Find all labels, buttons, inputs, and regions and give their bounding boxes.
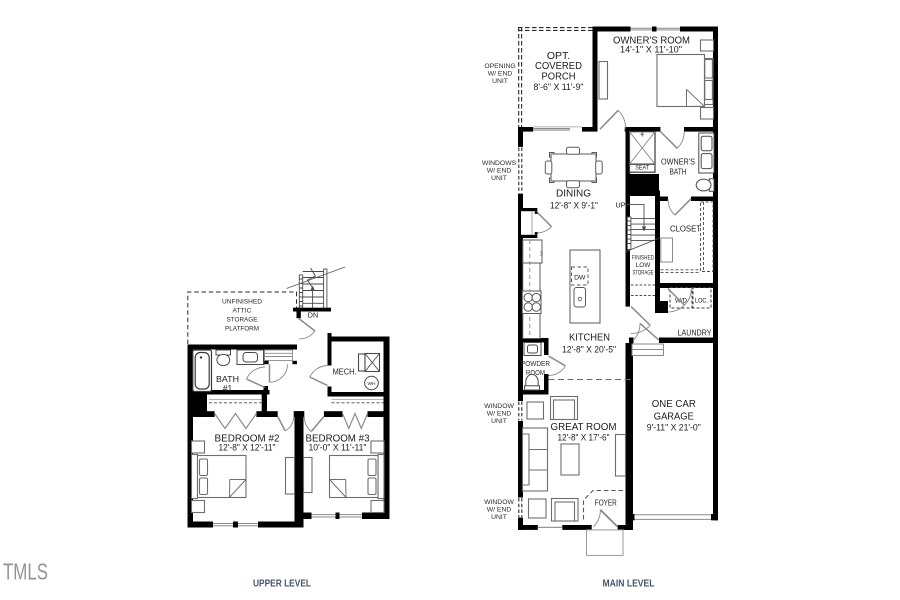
svg-text:10'-0" X 11'-11": 10'-0" X 11'-11" xyxy=(309,443,367,453)
svg-text:POWDER: POWDER xyxy=(521,359,550,368)
svg-text:UNIT: UNIT xyxy=(491,418,507,425)
svg-text:FOYER: FOYER xyxy=(595,499,617,508)
svg-text:9'-11" X 21'-0": 9'-11" X 21'-0" xyxy=(647,423,701,433)
svg-text:SEAT: SEAT xyxy=(635,165,649,172)
svg-text:ONE CAR: ONE CAR xyxy=(652,398,696,410)
svg-text:UP: UP xyxy=(616,200,626,209)
svg-text:STORAGE: STORAGE xyxy=(227,317,258,324)
svg-text:WINDOW: WINDOW xyxy=(484,403,514,410)
svg-text:WINDOWS: WINDOWS xyxy=(482,160,517,167)
svg-text:W/ END: W/ END xyxy=(487,411,512,418)
svg-text:W/ END: W/ END xyxy=(487,507,512,514)
svg-text:LOC.: LOC. xyxy=(695,297,708,304)
svg-text:UPPER LEVEL: UPPER LEVEL xyxy=(253,579,311,590)
svg-text:12'-8" X 20'-5": 12'-8" X 20'-5" xyxy=(562,345,616,355)
svg-text:DW: DW xyxy=(574,275,586,282)
svg-text:MAIN LEVEL: MAIN LEVEL xyxy=(603,579,655,590)
svg-text:OPENING: OPENING xyxy=(484,63,515,70)
svg-text:UNIT: UNIT xyxy=(492,78,508,85)
svg-text:ATTIC: ATTIC xyxy=(233,308,252,315)
svg-text:PLATFORM: PLATFORM xyxy=(225,326,259,333)
svg-text:WINDOW: WINDOW xyxy=(484,499,514,506)
svg-text:12'-8" X 12'-11": 12'-8" X 12'-11" xyxy=(219,443,276,453)
svg-text:CLOSET: CLOSET xyxy=(670,223,701,233)
svg-text:OWNER'S: OWNER'S xyxy=(661,158,695,167)
svg-text:W/ END: W/ END xyxy=(487,168,512,175)
svg-text:12'-8" X 9'-1": 12'-8" X 9'-1" xyxy=(550,201,598,211)
svg-text:STORAGE: STORAGE xyxy=(633,269,654,276)
svg-text:MECH.: MECH. xyxy=(333,367,357,376)
svg-text:WH: WH xyxy=(368,381,377,387)
svg-text:PORCH: PORCH xyxy=(542,70,576,82)
svg-text:GARAGE: GARAGE xyxy=(654,411,694,423)
svg-text:DINING: DINING xyxy=(556,188,591,200)
svg-text:TMLS: TMLS xyxy=(3,559,48,585)
svg-text:UNIT: UNIT xyxy=(491,175,507,182)
svg-text:UNIT: UNIT xyxy=(491,514,507,521)
svg-text:BATH: BATH xyxy=(670,168,687,177)
svg-text:LAUNDRY: LAUNDRY xyxy=(678,327,712,337)
svg-text:#1: #1 xyxy=(223,383,233,393)
svg-text:LOW: LOW xyxy=(636,262,652,269)
svg-text:14'-1" X 11'-10": 14'-1" X 11'-10" xyxy=(620,45,682,55)
svg-text:12'-8" X 17'-6": 12'-8" X 17'-6" xyxy=(558,433,610,443)
svg-text:KITCHEN: KITCHEN xyxy=(569,332,610,344)
svg-text:DN: DN xyxy=(308,311,318,320)
svg-text:UNFINISHED: UNFINISHED xyxy=(222,299,262,306)
svg-text:GREAT ROOM: GREAT ROOM xyxy=(551,421,617,433)
svg-text:W/ END: W/ END xyxy=(488,71,513,78)
svg-text:FINISHED: FINISHED xyxy=(632,254,654,261)
svg-text:8'-6" X 11'-9": 8'-6" X 11'-9" xyxy=(534,82,584,92)
